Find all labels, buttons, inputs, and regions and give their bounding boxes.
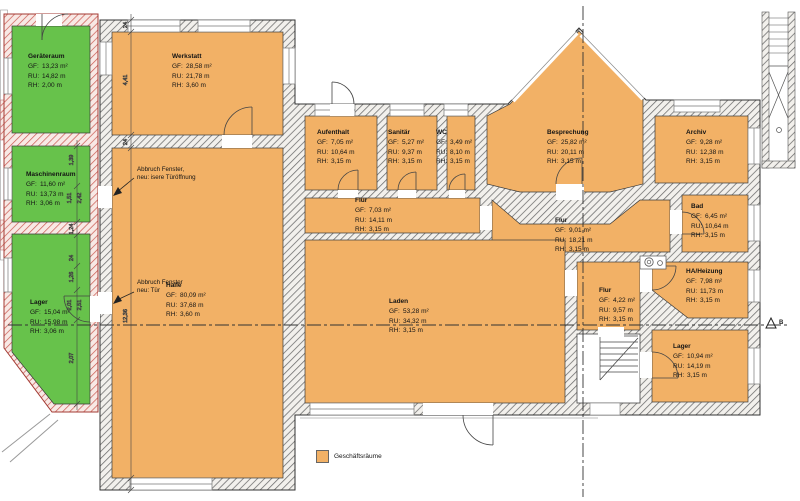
room-name: Flur: [599, 286, 635, 295]
boiler-fixture: [640, 256, 666, 269]
floor-plan: B 24 4,41 24 12,36 1,39 1,51 2,42 1,24 2…: [0, 0, 800, 501]
rh-key: RH:: [28, 81, 42, 90]
room-name: Laden: [389, 297, 429, 306]
dim-label: 24: [123, 22, 129, 28]
room-label-flur-west: Flur GF:7,03 m² RU:14,11 m RH:3,15 m: [355, 196, 392, 235]
gf-value: 13,23 m²: [42, 62, 68, 71]
room-label-flur-ost: Flur GF:4,22 m² RU:9,57 m RH:3,15 m: [599, 286, 635, 325]
annotation-abbruch-fenster-2: Abbruch Fenster neu: Tür: [137, 279, 183, 296]
room-name: Lager: [673, 342, 713, 351]
room-label-geraeteraum: Geräteraum GF:13,23 m² RU:14,82 m RH:2,0…: [28, 52, 68, 91]
stairwell: [577, 334, 640, 415]
rh-value: 2,00 m: [42, 81, 62, 90]
floor-plan-drawing: B 24 4,41 24 12,36 1,39 1,51 2,42 1,24 2…: [0, 0, 800, 501]
ru-value: 14,82 m: [42, 72, 66, 81]
room-name: Werkstatt: [172, 52, 212, 61]
room-label-lager-ost: Lager GF:10,94 m² RU:14,19 m RH:3,15 m: [673, 342, 713, 381]
legend: Geschäftsräume: [316, 450, 382, 463]
room-name: HA/Heizung: [686, 267, 723, 276]
room-label-laden: Laden GF:53,28 m² RU:34,32 m RH:3,15 m: [389, 297, 429, 336]
room-flur-west: [305, 198, 480, 233]
room-laden: [305, 240, 565, 403]
legend-swatch: [316, 450, 329, 463]
room-label-besprechung: Besprechung GF:25,82 m² RU:20,11 m RH:3,…: [547, 128, 589, 167]
room-label-archiv: Archiv GF:9,28 m² RU:12,38 m RH:3,15 m: [686, 128, 724, 167]
room-label-maschinenraum: Maschinenraum GF:11,60 m² RU:13,73 m RH:…: [26, 170, 76, 209]
room-besprechung: [487, 31, 643, 192]
dim-label: 2,07: [69, 353, 75, 364]
external-stair: [762, 12, 795, 168]
annotation-abbruch-fenster-1: Abbruch Fenster, neu: isere Türöffnung: [137, 166, 196, 183]
section-marker-icon: [766, 318, 776, 328]
room-name: Geräteraum: [28, 52, 68, 61]
room-label-sanitaer: Sanitär GF:5,27 m² RU:9,37 m RH:3,15 m: [388, 128, 424, 167]
legend-label: Geschäftsräume: [334, 453, 382, 460]
room-name: Aufenthalt: [317, 128, 355, 137]
room-label-flur-mitte: Flur GF:9,01 m² RU:18,21 m RH:3,15 m: [555, 216, 593, 255]
room-name: Bad: [691, 202, 729, 211]
room-label-werkstatt: Werkstatt GF:28,58 m² RU:21,78 m RH:3,60…: [172, 52, 212, 91]
room-name: Flur: [355, 196, 392, 205]
dim-label: 1,26: [69, 272, 75, 283]
section-marker-label: B: [779, 320, 784, 326]
dim-label: 24: [123, 139, 129, 145]
room-name: Flur: [555, 216, 593, 225]
room-name: Lager: [30, 298, 70, 307]
room-label-aufenthalt: Aufenthalt GF:7,05 m² RU:10,64 m RH:3,15…: [317, 128, 355, 167]
dim-label: 1,24: [69, 224, 75, 235]
ru-key: RU:: [28, 72, 42, 81]
room-name: WC: [436, 128, 472, 137]
room-label-wc: WC GF:3,49 m² RU:8,10 m RH:3,15 m: [436, 128, 472, 167]
dim-label: 24: [69, 255, 75, 261]
gf-key: GF:: [28, 62, 42, 71]
dim-label: 12,36: [123, 309, 129, 323]
room-name: Archiv: [686, 128, 724, 137]
room-name: Sanitär: [388, 128, 424, 137]
dim-label: 4,41: [123, 75, 129, 86]
room-name: Maschinenraum: [26, 170, 76, 179]
room-label-lager-west: Lager GF:15,04 m² RU:15,98 m RH:3,06 m: [30, 298, 70, 337]
room-label-ha-heizung: HA/Heizung GF:7,98 m² RU:11,73 m RH:3,15…: [686, 267, 723, 306]
dim-label: 1,39: [69, 155, 75, 166]
room-name: Besprechung: [547, 128, 589, 137]
dim-label: 2,51: [77, 300, 83, 311]
room-label-bad: Bad GF:6,45 m² RU:10,64 m RH:3,15 m: [691, 202, 729, 241]
dim-label: 2,42: [77, 193, 83, 204]
